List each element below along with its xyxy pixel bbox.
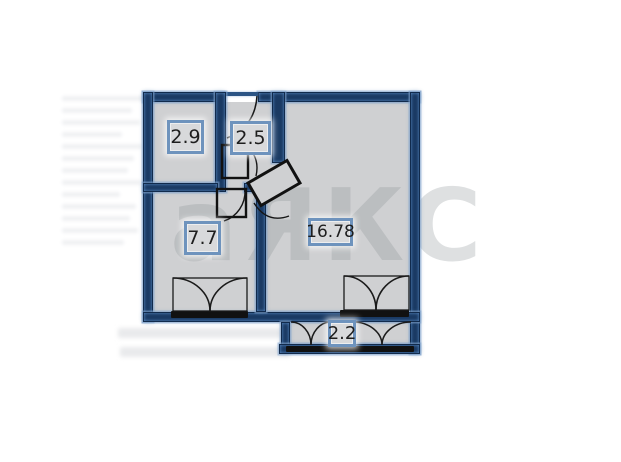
balcony-window-arc-3 [353, 322, 382, 345]
balcony-window-arc-4 [382, 322, 411, 345]
main-room-door-leaf [248, 160, 300, 205]
room-area-value: 16.78 [306, 222, 355, 242]
balcony-window-arc-1 [291, 322, 311, 345]
main-room-window-arc-right [376, 276, 409, 310]
room-area-label-left-room: 7.7 [184, 221, 221, 255]
room-area-value: 7.7 [187, 227, 217, 249]
room-area-label-hallway: 2.5 [230, 121, 271, 155]
left-room-window-arc-left [173, 278, 210, 311]
main-room-window-arc-left [344, 276, 376, 310]
room-area-value: 2.9 [170, 126, 200, 148]
room-area-label-main-room: 16.78 [308, 218, 353, 246]
floor-plan-canvas: аЯКС [0, 0, 621, 462]
left-room-door-leaf [217, 189, 246, 217]
room-area-value: 2.2 [328, 323, 357, 344]
left-room-window-arc-right [210, 278, 247, 311]
room-area-label-storeroom: 2.9 [167, 120, 204, 154]
room-area-value: 2.5 [235, 127, 265, 149]
room-area-label-balcony: 2.2 [328, 320, 356, 347]
